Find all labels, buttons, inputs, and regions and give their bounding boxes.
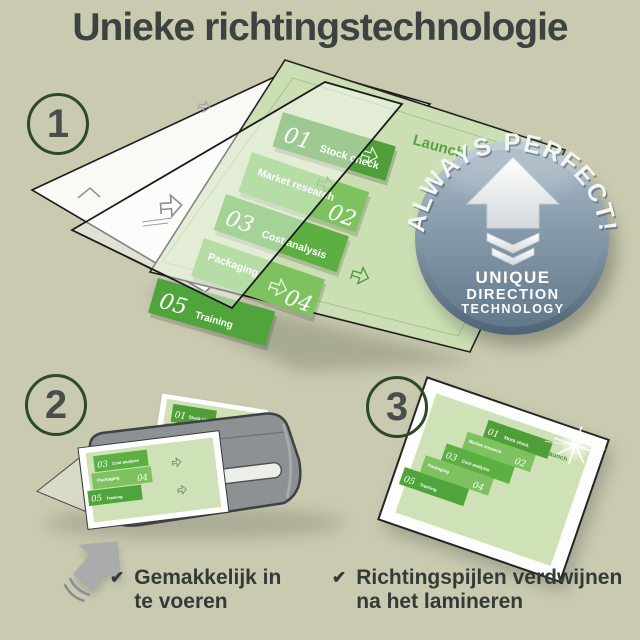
check-icon: ✔: [110, 568, 124, 588]
badge-line3: TECHNOLOGY: [461, 302, 564, 316]
illustration-scene: Launch 01 Stock check Market research 02: [0, 0, 640, 640]
svg-text:04: 04: [137, 473, 149, 484]
checklist-item-easy-feed: ✔ Gemakkelijk in te voeren: [110, 566, 281, 613]
step-circle-2: 2: [25, 374, 87, 436]
pouch-tip-outline: [34, 458, 86, 517]
step-number: 3: [386, 385, 408, 430]
checklist-line: te voeren: [134, 590, 281, 614]
infographic-canvas: Launch 01 Stock check Market research 02: [0, 0, 640, 640]
svg-text:05: 05: [91, 493, 103, 504]
step-circle-1: 1: [27, 93, 89, 155]
checklist-text: Richtingspijlen verdwijnen na het lamine…: [356, 566, 622, 613]
checklist-item-arrows-disappear: ✔ Richtingspijlen verdwijnen na het lami…: [332, 566, 622, 613]
page-title: Unieke richtingstechnologie: [0, 6, 640, 50]
checklist-line: Gemakkelijk in: [134, 566, 281, 590]
checklist-line: na het lamineren: [356, 590, 622, 614]
badge-line2: DIRECTION: [466, 287, 559, 303]
svg-text:01: 01: [174, 410, 187, 422]
step-number: 2: [45, 383, 67, 428]
step-circle-3: 3: [366, 376, 428, 438]
badge-line1: UNIQUE: [475, 268, 550, 287]
svg-text:03: 03: [97, 459, 109, 470]
checklist-line: Richtingspijlen verdwijnen: [356, 566, 622, 590]
step-number: 1: [47, 102, 69, 147]
checklist-text: Gemakkelijk in te voeren: [134, 566, 281, 613]
check-icon: ✔: [332, 568, 346, 588]
